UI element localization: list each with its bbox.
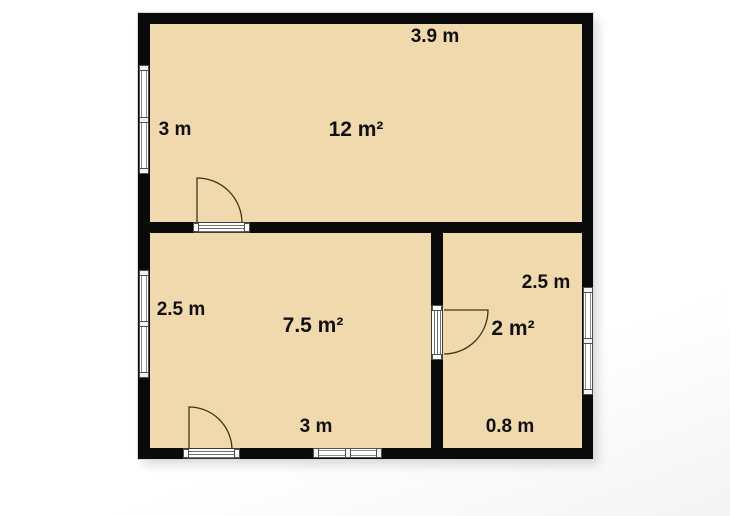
- door-swing-top-room-icon: [197, 178, 242, 223]
- room-bottom-right-area-label: 2 m²: [491, 317, 534, 341]
- floor-plan: 3.9 m 3 m 12 m² 2.5 m 7.5 m² 3 m 2.5 m 2…: [138, 13, 593, 459]
- room-bottom-left-height-label: 2.5 m: [157, 299, 206, 321]
- door-swings-layer: [138, 13, 593, 459]
- room-bottom-right-height-label: 2.5 m: [522, 272, 571, 294]
- room-top-height-label: 3 m: [159, 119, 192, 141]
- floor-plan-canvas: 3.9 m 3 m 12 m² 2.5 m 7.5 m² 3 m 2.5 m 2…: [0, 0, 730, 516]
- room-bottom-left-width-label: 3 m: [300, 416, 333, 438]
- room-top-width-label: 3.9 m: [411, 26, 460, 48]
- room-top-area-label: 12 m²: [329, 118, 384, 142]
- room-bottom-left-area-label: 7.5 m²: [283, 314, 344, 338]
- door-swing-interior-icon: [444, 310, 488, 354]
- room-bottom-right-width-label: 0.8 m: [486, 416, 535, 438]
- door-swing-exterior-icon: [189, 407, 232, 449]
